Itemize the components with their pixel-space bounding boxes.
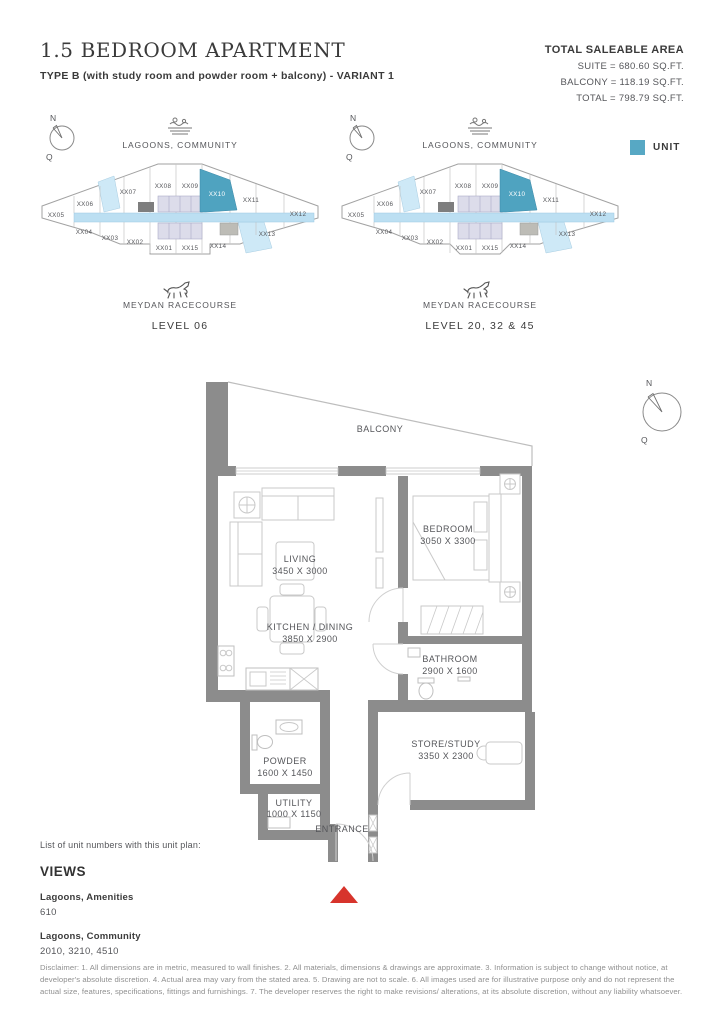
tv-unit [376,558,383,588]
area-heading: TOTAL SALEABLE AREA [545,44,684,56]
keyplan-level-label: LEVEL 06 [34,320,326,332]
bedroom-furniture [413,474,520,634]
lagoons-icon [162,116,196,136]
compass-q-label: Q [641,435,648,445]
views-heading: VIEWS [40,864,201,879]
unit-label: XX02 [427,239,444,246]
saleable-area-block: TOTAL SALEABLE AREA SUITE = 680.60 SQ.FT… [545,44,684,104]
unit-label: XX05 [48,212,65,219]
unit-label: XX03 [402,235,419,242]
unit-label: XX07 [420,189,437,196]
svg-text:2900 X 1600: 2900 X 1600 [422,666,477,676]
room-label-bedroom: BEDROOM [423,524,473,534]
area-balcony: BALCONY = 118.19 SQ.FT. [545,77,684,88]
lagoons-icon [462,116,496,136]
view-group-title: Lagoons, Community [40,931,201,942]
keyplan-level-06: N Q LAGOONS, COMMUNITY [34,112,326,327]
brochure-page: 1.5 BEDROOM APARTMENT TYPE B (with study… [0,0,724,1024]
racecourse-horse-icon [162,280,198,300]
disclaimer-text: Disclaimer: 1. All dimensions are in met… [40,962,690,998]
unit-label: XX09 [182,183,199,190]
unit-label-highlighted: XX10 [509,191,526,198]
room-label-utility: UTILITY [275,798,312,808]
bathroom-door [373,644,403,674]
unit-legend: UNIT [630,140,680,155]
kitchen-sink-counter [246,668,290,690]
room-label-balcony: BALCONY [357,424,404,434]
chair [280,643,304,654]
unit-label: XX06 [77,201,94,208]
unit-label: XX01 [456,245,473,252]
headboard [489,494,501,582]
svg-text:3050 X 3300: 3050 X 3300 [420,536,475,546]
area-total: TOTAL = 798.79 SQ.FT. [545,93,684,104]
chair [280,584,304,595]
svg-text:1600 X 1450: 1600 X 1450 [257,768,312,778]
unit-list-intro: List of unit numbers with this unit plan… [40,840,201,850]
unit-label: XX11 [243,197,259,204]
store-furniture [477,742,522,764]
keyplan-service-block [520,223,538,235]
stove [218,646,234,676]
unit-label: XX14 [210,243,227,250]
area-suite: SUITE = 680.60 SQ.FT. [545,61,684,72]
unit-legend-label: UNIT [653,142,680,153]
compass-north-label: N [50,113,56,123]
room-label-living: LIVING [284,554,317,564]
racecourse-horse-icon [462,280,498,300]
floorplan: BALCONY LIVING 3450 X 3000 KITCHEN / DIN… [200,372,540,907]
powder-fixtures [252,720,302,750]
bedroom-door [369,588,403,622]
compass-north-label: N [350,113,356,123]
keyplan-level-label: LEVEL 20, 32 & 45 [334,320,626,332]
keyplan-top-label: LAGOONS, COMMUNITY [334,140,626,150]
bathroom-sink [408,648,420,657]
toilet-tank [252,735,257,750]
unit-label: XX08 [155,183,172,190]
keyplan-stair-block [438,202,454,212]
keyplan-building: XX05 XX06 XX07 XX08 XX09 XX10 XX11 XX12 … [340,156,620,278]
unit-label: XX02 [127,239,144,246]
unit-label: XX15 [482,245,499,252]
keyplan-top-label: LAGOONS, COMMUNITY [34,140,326,150]
keyplan-level-20-32-45: N Q LAGOONS, COMMUNITY [334,112,626,327]
room-label-store: STORE/STUDY [411,739,480,749]
room-label-kitchen: KITCHEN / DINING [267,622,354,632]
toilet [419,683,433,699]
svg-text:3850 X 2900: 3850 X 2900 [282,634,337,644]
toilet [258,736,273,749]
view-group-units: 2010, 3210, 4510 [40,946,201,957]
unit-label: XX01 [156,245,173,252]
unit-swatch-icon [630,140,645,155]
compass-icon: N Q [620,374,700,450]
unit-label: XX15 [182,245,199,252]
unit-label: XX03 [102,235,119,242]
unit-label-highlighted: XX10 [209,191,226,198]
unit-label: XX06 [377,201,394,208]
unit-label: XX11 [543,197,559,204]
unit-label: XX04 [76,229,93,236]
store-door [378,773,410,805]
page-title: 1.5 BEDROOM APARTMENT [40,38,345,62]
compass-north-label: N [646,378,652,388]
room-label-bathroom: BATHROOM [422,654,477,664]
keyplan-service-block [220,223,238,235]
pillow [474,540,487,570]
unit-label: XX13 [559,231,576,238]
page-subtitle: TYPE B (with study room and powder room … [40,70,394,82]
unit-label: XX09 [482,183,499,190]
unit-label: XX13 [259,231,276,238]
svg-text:3350 X 2300: 3350 X 2300 [418,751,473,761]
unit-label: XX12 [590,211,607,218]
unit-label: XX14 [510,243,527,250]
keyplan-building: XX05 XX06 XX07 XX08 XX09 XX10 XX11 XX12 … [40,156,320,278]
unit-label: XX12 [290,211,307,218]
desk [486,742,522,764]
unit-list: List of unit numbers with this unit plan… [40,840,201,957]
unit-label: XX08 [455,183,472,190]
tv-unit [376,498,383,552]
unit-label: XX04 [376,229,393,236]
room-label-entrance: ENTRANCE [315,824,369,834]
wardrobe [421,606,483,634]
keyplan-bottom-label: MEYDAN RACECOURSE [34,300,326,310]
unit-label: XX05 [348,212,365,219]
keyplan-bottom-label: MEYDAN RACECOURSE [334,300,626,310]
view-group-title: Lagoons, Amenities [40,892,201,903]
room-label-powder: POWDER [263,756,307,766]
faucet [458,677,470,681]
walls [206,382,535,862]
svg-text:3450 X 3000: 3450 X 3000 [272,566,327,576]
pillow [474,502,487,532]
entrance-marker-icon [330,886,358,903]
keyplan-stair-block [138,202,154,212]
toilet-tank [418,678,434,683]
svg-text:1000 X 1150: 1000 X 1150 [267,809,322,819]
unit-label: XX07 [120,189,137,196]
view-group-units: 610 [40,907,201,918]
